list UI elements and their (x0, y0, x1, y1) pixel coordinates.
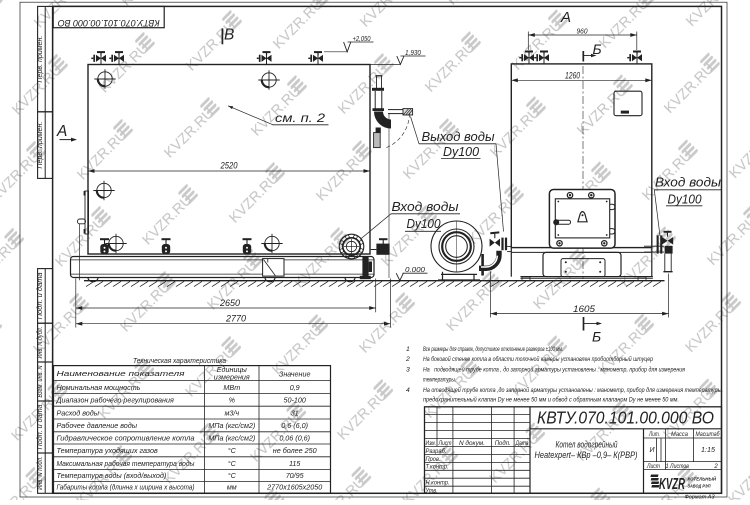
svg-text:1:15: 1:15 (701, 447, 715, 454)
svg-text:Перв. примен.: Перв. примен. (35, 122, 44, 169)
svg-text:КВТУ.070.101.00.000 ВО: КВТУ.070.101.00.000 ВО (537, 408, 714, 428)
svg-text:1260: 1260 (565, 71, 580, 81)
svg-text:0,06 (0,6): 0,06 (0,6) (279, 433, 310, 442)
svg-text:960: 960 (577, 27, 589, 36)
svg-text:Подп. и дата: Подп. и дата (35, 405, 44, 450)
svg-text:КОТЕЛЬНЫЙ: КОТЕЛЬНЫЙ (688, 475, 717, 482)
svg-text:Максимальная рабочая температу: Максимальная рабочая температура воды (57, 459, 196, 468)
svg-text:Листов: Листов (669, 464, 689, 470)
svg-text:Гидравлическое сопротивление к: Гидравлическое сопротивление котла (57, 433, 195, 442)
svg-text:температуры.: температуры. (423, 377, 456, 384)
svg-text:%: % (229, 396, 236, 405)
svg-text:Масштаб: Масштаб (696, 432, 721, 438)
svg-text:Температура воды (вход/выход): Температура воды (вход/выход) (57, 471, 167, 480)
svg-text:Перв. примен.: Перв. примен. (35, 36, 44, 83)
svg-text:мм: мм (227, 483, 237, 492)
svg-text:см. п. 2: см. п. 2 (275, 111, 325, 125)
svg-text:ЗАВОД РЭП: ЗАВОД РЭП (688, 484, 712, 489)
svg-text:N докум.: N докум. (459, 440, 485, 447)
svg-text:На отводящей трубе котла ,до з: На отводящей трубе котла ,до запорной ар… (423, 386, 723, 394)
svg-text:°С: °С (228, 471, 237, 480)
svg-text:Dy100: Dy100 (443, 145, 479, 159)
svg-text:Расход воды: Расход воды (57, 408, 100, 417)
svg-text:Утв.: Утв. (425, 487, 438, 494)
svg-text:Лист: Лист (646, 464, 660, 470)
svg-text:Лит.: Лит. (648, 432, 660, 438)
svg-text:м3/ч: м3/ч (224, 408, 239, 417)
svg-text:Heatexpert– КВр –0,9– К(РВР): Heatexpert– КВр –0,9– К(РВР) (535, 450, 638, 460)
svg-text:Взам. инв. N: Взам. инв. N (35, 365, 44, 398)
svg-text:Техническая характеристика: Техническая характеристика (133, 356, 226, 365)
svg-text:0,9: 0,9 (290, 383, 300, 392)
svg-text:Изм.: Изм. (426, 440, 437, 447)
svg-text:В: В (224, 27, 234, 44)
svg-text:Лист: Лист (438, 440, 452, 447)
svg-text:4: 4 (406, 387, 410, 394)
svg-text:Dy100: Dy100 (668, 192, 702, 206)
svg-text:2650: 2650 (219, 298, 240, 308)
svg-text:Б: Б (593, 41, 602, 57)
svg-text:Котел водогрейный: Котел водогрейный (556, 440, 618, 450)
svg-text:Рабочее давление воды: Рабочее давление воды (57, 421, 138, 430)
svg-text:Т.контр.: Т.контр. (426, 464, 449, 471)
svg-text:2: 2 (713, 464, 718, 470)
svg-text:Dy100: Dy100 (407, 217, 441, 231)
svg-text:Инв. N подл.: Инв. N подл. (35, 457, 44, 490)
svg-text:А: А (56, 123, 67, 140)
svg-text:KVZR: KVZR (659, 476, 685, 493)
svg-text:°С: °С (228, 459, 237, 468)
svg-text:Инв. N дубл.: Инв. N дубл. (35, 327, 44, 359)
svg-text:Дата: Дата (515, 440, 529, 447)
svg-text:Значение: Значение (279, 370, 311, 379)
svg-text:Н.контр.: Н.контр. (426, 480, 450, 487)
svg-text:Габариты котла (длинна х ширин: Габариты котла (длинна х ширина х высота… (57, 483, 195, 492)
svg-text:50-100: 50-100 (284, 396, 306, 405)
svg-text:Вход воды: Вход воды (392, 200, 459, 214)
svg-text:Температура уходящих газов: Температура уходящих газов (57, 446, 159, 455)
svg-text:предохранительный клапан Dy н: предохранительный клапан Dy не менее 50 … (423, 395, 679, 403)
svg-text:2520: 2520 (220, 161, 238, 171)
svg-text:Разраб.: Разраб. (426, 448, 447, 455)
svg-text:Б: Б (592, 329, 601, 345)
svg-text:Масса: Масса (671, 432, 689, 438)
svg-text:Формат А3: Формат А3 (684, 494, 715, 500)
svg-text:Все размеры для справок, допус: Все размеры для справок, допустимое откл… (423, 345, 563, 353)
svg-text:МВт: МВт (223, 383, 240, 392)
svg-text:2770: 2770 (225, 313, 246, 323)
svg-text:не более 250: не более 250 (273, 446, 317, 455)
svg-text:0.000: 0.000 (405, 267, 425, 274)
svg-text:1605: 1605 (573, 304, 596, 314)
svg-text:1: 1 (665, 464, 668, 470)
svg-text:МПа (кгс/см2): МПа (кгс/см2) (208, 421, 255, 430)
svg-text:Подп.: Подп. (495, 440, 511, 447)
svg-text:70/95: 70/95 (286, 471, 305, 480)
svg-text:2770х1605х2050: 2770х1605х2050 (266, 483, 322, 492)
svg-text:Вход воды: Вход воды (655, 176, 721, 190)
svg-text:Диапазон рабочего регулировани: Диапазон рабочего регулирования (56, 396, 175, 405)
svg-text:0,6 (6,0): 0,6 (6,0) (281, 421, 308, 430)
svg-text:Выход воды: Выход воды (422, 130, 495, 144)
svg-text:°С: °С (228, 446, 237, 455)
svg-text:Подп. и дата: Подп. и дата (35, 272, 44, 319)
svg-text:1: 1 (406, 346, 410, 353)
svg-text:МПа (кгс/см2): МПа (кгс/см2) (208, 433, 255, 442)
svg-text:КВТУ.070.101.00.000 ВО: КВТУ.070.101.00.000 ВО (57, 17, 160, 28)
svg-text:На боковой стенке котла в обла: На боковой стенке котла в области топочн… (423, 355, 653, 363)
svg-text:3: 3 (406, 367, 410, 374)
svg-text:2: 2 (405, 356, 410, 363)
svg-text:115: 115 (289, 459, 301, 468)
svg-text:Наименование показателя: Наименование показателя (57, 369, 185, 378)
svg-text:Пров.: Пров. (426, 456, 441, 463)
svg-text:А: А (560, 9, 571, 26)
svg-text:измерения: измерения (214, 372, 250, 381)
svg-text:Номинальная мощность: Номинальная мощность (57, 383, 141, 392)
svg-text:На подводящей трубе котла ,: На подводящей трубе котла , до запорной … (423, 366, 685, 374)
svg-text:31: 31 (291, 408, 299, 417)
